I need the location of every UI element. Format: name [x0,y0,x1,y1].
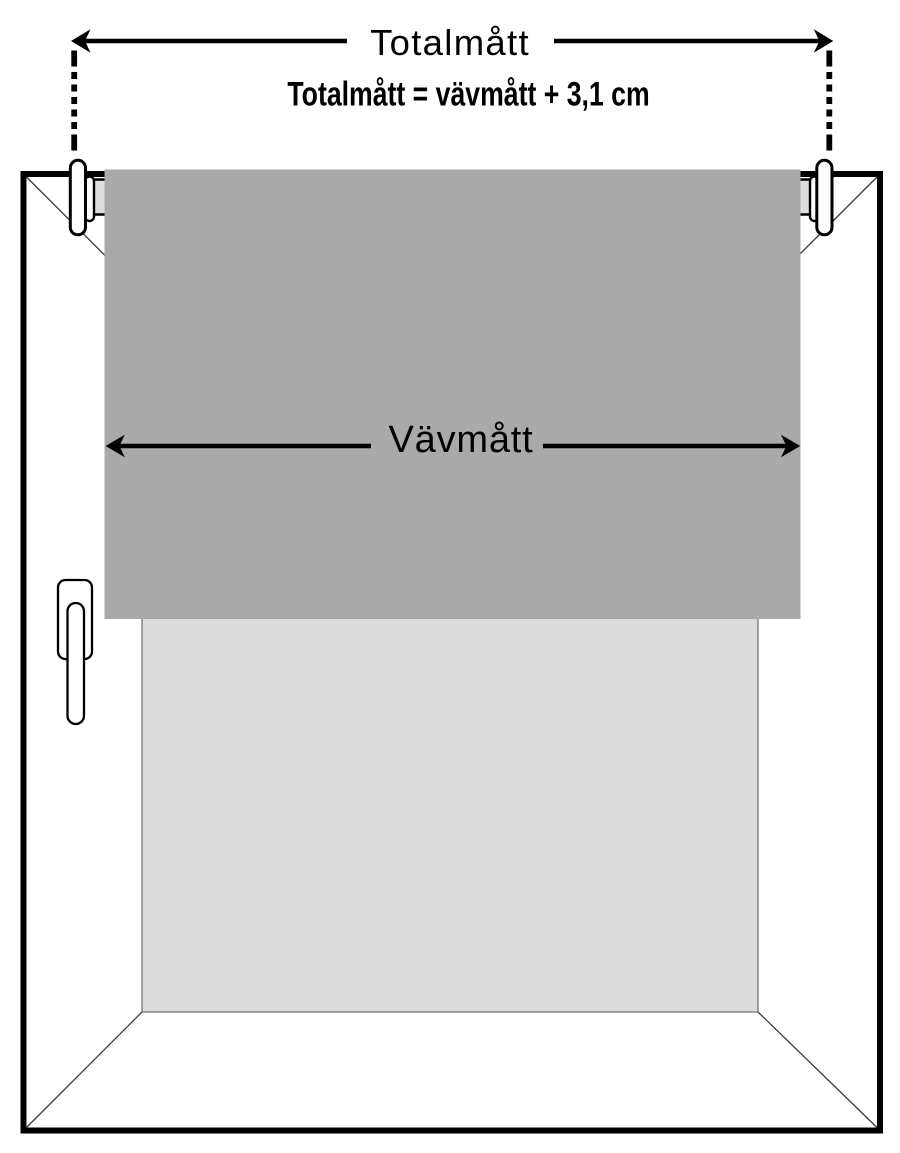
svg-text:Totalmått = vävmått + 3,1 cm: Totalmått = vävmått + 3,1 cm [287,75,649,113]
svg-text:Totalmått: Totalmått [370,22,530,63]
svg-text:Vävmått: Vävmått [389,419,534,461]
